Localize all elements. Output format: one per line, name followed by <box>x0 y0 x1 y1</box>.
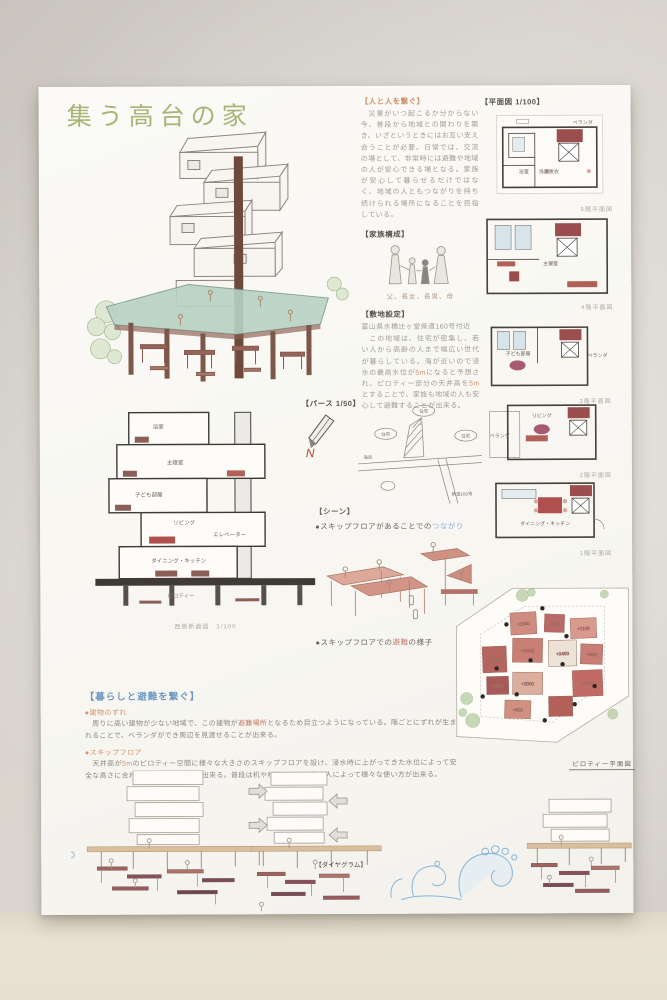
perspective-drawing <box>84 126 355 397</box>
lifestyle-block: 【暮らしと避難を繋ぐ】 ●建物のずれ 周りに高い建物が少ない地域で、この建物が避… <box>85 688 457 783</box>
diagram-sketch-1 <box>87 770 267 905</box>
site-highlight-1: 5m <box>415 370 426 377</box>
lifestyle-bullet-1-body: 周りに高い建物が少ない地域で、この建物が避難場所となるため目立つようになっている… <box>85 718 457 743</box>
scene-highlight-connect: つながり <box>432 522 464 531</box>
site-body: この地域は、住宅が密集し、若い人から高齢の人まで幅広い世代が暮らしている。海が近… <box>361 334 479 413</box>
plan-3f: 子ども部屋 ベランダ 3階平面図 <box>485 323 611 405</box>
plan-4f-caption: 4階平面図 <box>483 302 613 311</box>
diagram-label: 【ダイヤグラム】 <box>315 860 367 869</box>
plan-2f-drawing: リビング ベランダ <box>486 401 612 465</box>
svg-text:+2000: +2000 <box>488 657 502 663</box>
svg-text:+1100: +1100 <box>577 626 590 631</box>
svg-text:+1500: +1500 <box>517 621 531 627</box>
svg-text:+400: +400 <box>549 621 560 626</box>
site-address: 富山県水橋辻ヶ堂県道160号付近 <box>361 322 479 334</box>
svg-text:+600: +600 <box>492 683 503 688</box>
map-house-label: 住宅 <box>461 433 471 439</box>
family-heading: 【家族構成】 <box>361 229 479 240</box>
diagram-sketch-3 <box>527 799 631 893</box>
diagram-sketch-2: 【ダイヤグラム】 <box>249 772 381 911</box>
site-map: 住宅 住宅 住宅 海岸 県道160号 <box>358 403 482 503</box>
diagram-sketches: 【ダイヤグラム】 <box>71 769 633 913</box>
connect-body: 災害がいつ起こるか分からない今、普段から地域との関わりを築き、いざというときには… <box>361 108 479 220</box>
section-label: ダイニング・キッチン <box>151 556 207 564</box>
plan-4f: 主寝室 4階平面図 <box>483 215 613 311</box>
plan-5f-caption: 5階平面図 <box>487 204 613 213</box>
plan-label: ベランダ <box>573 119 593 126</box>
pilotis-plan-svg: +1500 +400 +1100 +1500 +2400 +2000 +800 … <box>452 584 633 747</box>
plan-label: ダイニング・キッチン <box>520 520 570 527</box>
elevator-core <box>234 156 244 378</box>
plan-1f: ダイニング・キッチン 1階平面図 <box>490 479 612 557</box>
section-label: リビング <box>173 518 196 526</box>
scene-highlight-evac: 避難 <box>393 638 409 647</box>
scene-bullet-1: ●スキップフロアがあることでのつながり <box>315 520 495 532</box>
plan-label: 洗面脱衣 <box>539 168 559 175</box>
plans-header: 【平面図 1/100】 <box>481 96 545 107</box>
plan-label: 浴室 <box>519 168 529 175</box>
pilotis-plan: +1500 +400 +1100 +1500 +2400 +2000 +800 … <box>452 584 635 772</box>
plan-3f-drawing: 子ども部屋 ベランダ <box>485 323 611 391</box>
map-road-label: 県道160号 <box>451 491 473 498</box>
lifestyle-bullet-2-label: ●スキップフロア <box>85 747 457 758</box>
plan-2f: リビング ベランダ 2階平面図 <box>486 401 612 479</box>
family-illustration <box>383 244 457 288</box>
lifestyle-heading: 【暮らしと避難を繋ぐ】 <box>85 688 457 703</box>
section-label: エレベーター <box>213 530 246 538</box>
svg-text:+800: +800 <box>586 652 597 657</box>
site-highlight-2: 5m <box>469 381 480 388</box>
text-column: 【人と人を繋ぐ】 災害がいつ起こるか分からない今、普段から地域との関わりを築き、… <box>361 95 480 427</box>
svg-text:+2000: +2000 <box>521 681 534 686</box>
section-caption: 西側断面図 1/100 <box>95 621 315 631</box>
plan-5f-drawing: ベランダ 浴室 洗面脱衣 <box>487 107 613 199</box>
section-label: ピロティー <box>167 592 194 599</box>
map-coast-label: 海岸 <box>363 454 373 461</box>
lifestyle-bullet-1-label: ●建物のずれ <box>85 707 457 718</box>
poster-sheet: 集う高台の家 <box>39 85 634 915</box>
section-drawing: 浴室 主寝室 子ども部屋 リビング エレベーター ダイニング・キッチン ピロティ… <box>95 408 316 631</box>
family-caption: 父、長女、長男、母 <box>361 291 479 301</box>
svg-text:+800: +800 <box>512 707 523 712</box>
section-label: 主寝室 <box>167 459 184 467</box>
shelf-surface <box>0 912 667 1000</box>
plan-4f-drawing: 主寝室 <box>483 215 613 297</box>
section-label: 子ども部屋 <box>135 491 163 499</box>
pilotis-deck <box>106 284 328 340</box>
plan-2f-caption: 2階平面図 <box>486 470 612 479</box>
lifestyle-highlight-shelter: 避難場所 <box>238 720 267 727</box>
svg-text:+2400: +2400 <box>556 651 569 656</box>
photo-scene: 集う高台の家 <box>0 0 667 1000</box>
map-house-label: 住宅 <box>381 431 391 437</box>
plan-label: 主寝室 <box>543 260 558 267</box>
plan-label: ベランダ <box>587 352 607 359</box>
plan-5f: ベランダ 浴室 洗面脱衣 5階平面図 <box>487 107 613 213</box>
scene-heading: 【シーン】 <box>315 505 495 517</box>
tower-boxes <box>170 132 289 306</box>
map-house-label: 住宅 <box>419 408 429 414</box>
plan-label: 子ども部屋 <box>505 350 530 357</box>
plan-1f-drawing: ダイニング・キッチン <box>490 479 612 543</box>
svg-text:+1500: +1500 <box>521 648 534 653</box>
section-drawing-svg: 浴室 主寝室 子ども部屋 リビング エレベーター ダイニング・キッチン ピロティ… <box>95 408 316 609</box>
connect-heading: 【人と人を繋ぐ】 <box>361 95 479 106</box>
plan-label: リビング <box>532 412 552 419</box>
site-heading: 【敷地設定】 <box>361 309 479 320</box>
plan-1f-caption: 1階平面図 <box>490 548 612 557</box>
section-label: 浴室 <box>153 423 165 431</box>
plan-label: ベランダ <box>490 432 510 439</box>
lifestyle-highlight-5m: 5m <box>122 761 132 768</box>
